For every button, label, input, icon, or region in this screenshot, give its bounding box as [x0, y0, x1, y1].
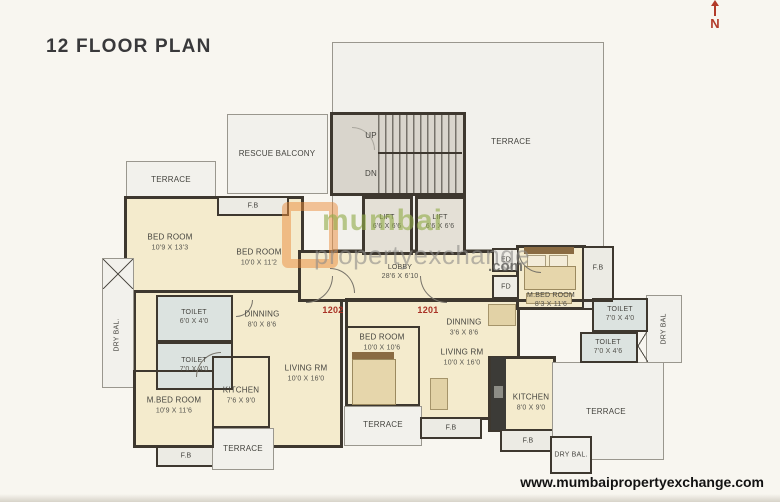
label-fb-kitchen-right: F.B [523, 436, 534, 445]
bed-mattress-center [352, 359, 396, 405]
page-title: 12 FLOOR PLAN [46, 36, 212, 58]
footer-url: www.mumbaipropertyexchange.com [520, 474, 764, 490]
sofa-right [430, 378, 448, 410]
label-stairs-down: DN [365, 169, 377, 179]
label-terrace-bottom-centerleft: TERRACE [223, 444, 263, 454]
stair-treads [378, 115, 462, 193]
label-living-right: LIVING RM10'0 X 16'0 [441, 348, 484, 369]
floor-plan-page: TERRACE F.B BED ROOM10'9 X 13'3 BED ROOM… [0, 0, 780, 502]
label-living-left: LIVING RM10'0 X 16'0 [285, 364, 328, 385]
label-shaft-ed: ED [501, 255, 511, 264]
north-letter: N [700, 16, 730, 31]
kitchen-sink-right [494, 386, 503, 398]
label-shaft-fd: FD [501, 282, 511, 291]
label-dry-balcony-bottom-right: DRY BAL. [554, 450, 587, 459]
label-dry-balcony-right: DRY BAL [659, 313, 668, 344]
label-bedroom-bottom-center: BED ROOM10'0 X 10'6 [359, 333, 404, 354]
label-terrace-bottom-right: TERRACE [586, 407, 626, 417]
north-arrow-icon: N [700, 0, 730, 31]
label-fb-bottom-left: F.B [181, 451, 192, 460]
stair-landing-line [378, 152, 462, 154]
label-lift-2: LIFT6'6 X 6'6 [426, 213, 455, 231]
cross-hatch-left [103, 259, 133, 289]
north-arrow-shaft [714, 6, 716, 16]
label-kitchen-right: KITCHEN8'0 X 9'0 [513, 393, 550, 414]
label-stairs-up: UP [365, 131, 377, 141]
label-bedroom-1: BED ROOM10'9 X 13'3 [147, 233, 192, 254]
label-bedroom-2: BED ROOM10'0 X 11'2 [236, 248, 281, 269]
label-dry-balcony-left: DRY BAL. [112, 318, 121, 351]
dining-table-right [488, 304, 516, 326]
label-lobby: LOBBY28'6 X 6'10 [382, 263, 419, 281]
label-lift-1: LIFT6'6 X 6'6 [373, 213, 402, 231]
label-terrace-top: TERRACE [491, 137, 531, 147]
page-bottom-shadow [0, 494, 780, 502]
label-dinning-left: DINNING8'0 X 8'6 [244, 310, 279, 331]
label-kitchen-left: KITCHEN7'6 X 9'0 [223, 386, 260, 407]
flat-number-1202: 1202 [322, 305, 343, 315]
label-rescue-balcony: RESCUE BALCONY [239, 149, 316, 159]
label-mbed-left: M.BED ROOM10'9 X 11'6 [147, 396, 201, 417]
label-fb-top-left: F.B [248, 201, 259, 210]
label-fb-bottom-center: F.B [446, 423, 457, 432]
flat-number-1201: 1201 [417, 305, 438, 315]
label-mbed-right: M.BED ROOM8'3 X 11'6 [527, 291, 575, 309]
label-terrace-bottom-center: TERRACE [363, 420, 403, 430]
label-toilet-left-1: TOILET6'0 X 4'0 [180, 308, 209, 326]
label-toilet-left-2: TOILET7'0 X 4'0 [180, 356, 209, 374]
label-fb-right: F.B [593, 263, 604, 272]
label-terrace-top-left: TERRACE [151, 175, 191, 185]
label-toilet-right-1: TOILET7'0 X 4'0 [606, 305, 635, 323]
label-toilet-right-2: TOILET7'0 X 4'6 [594, 338, 623, 356]
label-dinning-right: DINNING3'6 X 8'6 [446, 318, 481, 339]
